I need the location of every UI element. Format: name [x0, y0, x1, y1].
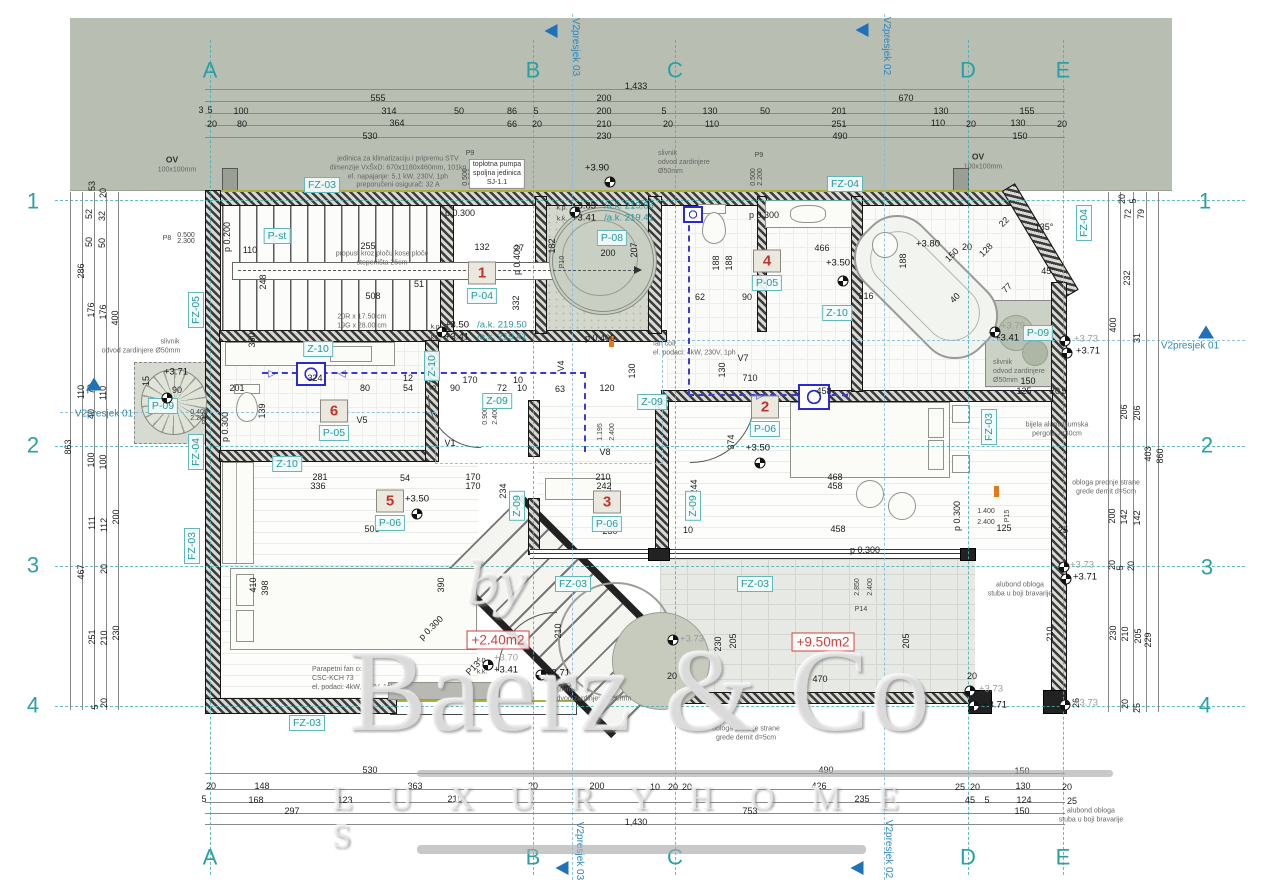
grid-axis-label: A [203, 844, 218, 869]
level-label: /a.k. 219.41 [477, 333, 527, 344]
dim-label: 400 [110, 310, 120, 325]
dim-label: p 0.300 [749, 210, 779, 220]
dim-label: 72 [497, 383, 507, 393]
zone-label: P-04 [467, 288, 497, 304]
dim-label: 5 [90, 704, 100, 709]
dim-label: 426 [811, 781, 826, 791]
dim-label: 5 [1115, 565, 1125, 570]
zone-label: P-06 [592, 516, 622, 532]
annotation: odvod zardinjere Ø50mm [553, 696, 632, 705]
annotation: propust kroz ploču kose ploče stepeništa… [336, 250, 429, 268]
dim-line [205, 101, 1065, 102]
dim-label: 176 [86, 302, 96, 317]
level-label: +3.71 [1076, 347, 1100, 358]
dim-label: 20 [98, 188, 108, 198]
dim-label: 508 [365, 291, 380, 301]
dim-label: 50 [760, 106, 770, 116]
dim-label: 130 [933, 106, 948, 116]
dim-label: 10 [650, 782, 660, 792]
dim-label: 20 [966, 119, 976, 129]
dim-label: 20 [1117, 194, 1127, 204]
dim-label: 1.195 [597, 423, 605, 441]
level-label: +3.71 [983, 701, 1007, 712]
dim-label: 316 [858, 291, 873, 301]
zone-label: Z-10 [272, 456, 302, 472]
dim-label: 100 [86, 452, 96, 467]
grid-axis-label: D [960, 57, 976, 82]
level-marker [1062, 348, 1073, 359]
dim-label: 207 [629, 242, 639, 257]
dim-label: 5 [201, 794, 206, 804]
section-arrow-icon [856, 23, 869, 37]
dim-label: 314 [381, 106, 396, 116]
dim-label: 20 [682, 782, 692, 792]
dim-label: 200 [1107, 508, 1117, 523]
grid-axis-label: E [1056, 844, 1071, 869]
dim-label: p 0.300 [952, 501, 962, 531]
annotation: slivnik odvod zardinjere Ø50mm [993, 359, 1045, 385]
section-arrow-icon [851, 861, 864, 875]
terrace-front-wall [660, 692, 982, 704]
level-marker [755, 458, 766, 469]
south-window-band [530, 549, 975, 559]
dim-label: 5 [1061, 386, 1066, 396]
area-badge: +9.50m2 [792, 633, 855, 652]
dim-label: 53 [87, 181, 97, 191]
dim-label: 1,430 [625, 817, 648, 827]
dim-label: 467 [76, 564, 86, 579]
grid-axis-label: B [526, 57, 541, 82]
dim-label: 72 [1123, 209, 1133, 219]
dim-label: 62 [695, 292, 705, 302]
dim-label: 490 [818, 765, 833, 775]
zone-label: P-st [264, 228, 291, 244]
dim-label: 25 [955, 782, 965, 792]
dim-label: P9 [755, 152, 764, 160]
chair-icon [856, 480, 884, 508]
orange-marker [994, 486, 999, 497]
dim-label: 148 [254, 781, 269, 791]
zone-label: P-08 [597, 230, 627, 246]
dim-line [205, 813, 1065, 814]
level-marker [838, 276, 849, 287]
grid-axis-label: E [1056, 57, 1071, 82]
dim-label: 2.200 [757, 168, 765, 186]
dim-label: V5 [356, 415, 367, 425]
window-pier [648, 548, 670, 561]
dim-label: 210 [553, 623, 563, 638]
section-label: V2presjek 02 [880, 17, 892, 75]
annotation: alubond obloga stuba u boji bravarije [1059, 807, 1124, 825]
grid-line-A [210, 40, 211, 875]
level-marker [162, 393, 173, 404]
level-label: +3.70 [494, 654, 518, 665]
dim-label: 2.200 [190, 415, 208, 423]
annotation: obloga prednje strane grede demit d=5cm [1072, 479, 1140, 497]
dim-label: 555 [370, 93, 385, 103]
level-marker [605, 177, 616, 188]
dim-label: 110 [76, 385, 86, 399]
section-arrow-icon [86, 378, 102, 391]
dim-label: 139 [257, 403, 267, 418]
dim-label: 200 [596, 106, 611, 116]
grid-line-B [533, 40, 534, 875]
zone-label: FZ-04 [1076, 205, 1092, 241]
dim-label: 200 [600, 248, 615, 258]
dim-label: 120 [599, 383, 614, 393]
grid-axis-label: 1 [27, 188, 39, 213]
level-label: +3.73 [1070, 561, 1094, 572]
zone-label: P-05 [752, 275, 782, 291]
zone-label: FZ-05 [188, 292, 204, 328]
dim-label: 530 [362, 131, 377, 141]
level-marker [990, 327, 1001, 338]
dim-label: 230 [111, 625, 121, 640]
zone-label: FZ-03 [555, 576, 591, 592]
dim-label: 363 [407, 781, 422, 791]
annotation: obloga prednje strane grede demit d=5cm [712, 725, 780, 743]
dim-label: p 0.300 [445, 208, 475, 218]
dim-label: 90 [742, 292, 752, 302]
level-label: +3.79 [1001, 322, 1025, 333]
level-label: k.p. [557, 204, 567, 211]
room-number: 3 [593, 491, 621, 514]
dim-label: 135° [1035, 222, 1054, 232]
dim-label: 170 [462, 375, 477, 385]
dim-label: 155 [1019, 106, 1034, 116]
dim-label: 20 [99, 698, 109, 708]
level-marker [1060, 700, 1071, 711]
level-label: +3.50 [445, 321, 469, 332]
dim-label: 201 [229, 383, 244, 393]
grid-axis-label: 2 [27, 432, 39, 457]
dim-label: 5 [661, 106, 666, 116]
dim-label: V8 [599, 447, 610, 457]
dim-label: 188 [898, 253, 908, 268]
grid-line-2 [55, 446, 1245, 447]
dim-label: 150 [1014, 766, 1029, 776]
dim-label: 188 [711, 255, 721, 270]
duct-arrow-icon: ▷ [756, 390, 764, 402]
dim-label: 130 [717, 362, 727, 377]
annotation: bijela aluminijumska pergola 7x30cm [1026, 421, 1089, 439]
dim-label: 100 [233, 106, 248, 116]
dim-label: 51 [414, 279, 424, 289]
zone-label: P-06 [750, 421, 780, 437]
dim-label: 54 [403, 383, 413, 393]
grid-axis-label: 2 [1201, 432, 1213, 457]
dim-label: 5 [533, 106, 538, 116]
dim-label: 20 [528, 781, 538, 791]
annotation: Parapetni fan coil CSC-KCH 73 el. podaci… [312, 666, 395, 692]
dim-label: 753 [742, 806, 757, 816]
dim-label: 205 [901, 633, 911, 648]
level-marker [1061, 574, 1072, 585]
dim-label: 130 [1015, 781, 1030, 791]
dim-label: p 0.300 [220, 412, 230, 442]
level-label: k.k. [557, 215, 567, 222]
dim-label: 12 [403, 373, 413, 383]
dim-label: 200 [596, 93, 611, 103]
pillow [928, 440, 944, 470]
dim-label: 458 [830, 524, 845, 534]
level-label: /a.k. 219.41 [604, 214, 654, 225]
zone-label: P-05 [319, 425, 349, 441]
pillow [236, 610, 254, 642]
toilet-bowl [702, 212, 726, 244]
dim-label: 20 [1120, 699, 1130, 709]
grid-axis-label: 3 [27, 552, 39, 577]
dim-label: 20 [532, 119, 542, 129]
annotation: alubond obloga stuba u boji bravarije [988, 581, 1053, 599]
zone-label: FZ-03 [737, 576, 773, 592]
dim-label: 229 [1143, 632, 1153, 647]
dim-label: 530 [362, 765, 377, 775]
level-label: +3.41 [445, 333, 469, 344]
dim-label: 2.850 [854, 578, 862, 596]
south-paving [390, 700, 577, 715]
room-number: 4 [753, 250, 781, 273]
site-terrain-band [70, 18, 1172, 191]
dim-label: 3 [198, 105, 203, 115]
zone-label: Z-09 [509, 491, 525, 521]
section-arrow-icon [556, 861, 569, 875]
dim-label: 100 [98, 454, 108, 469]
dim-label: 150 [1012, 131, 1027, 141]
dim-label: 5 [207, 105, 212, 115]
dim-label: 324 [307, 373, 322, 383]
section-line-03 [572, 14, 573, 880]
level-label: +3.90 [585, 164, 609, 175]
dim-label: 110 [243, 245, 257, 255]
level-marker [668, 635, 679, 646]
dim-label: 200 [111, 509, 121, 524]
annotation: slivnik [160, 339, 179, 348]
wall-room3-west-b [528, 498, 540, 555]
level-label: +3.50 [746, 444, 770, 455]
level-marker [1059, 562, 1070, 573]
dim-label: 2.400 [492, 407, 500, 425]
annotation: OV [972, 152, 984, 163]
dim-label: 20 [667, 671, 677, 681]
annotation: toplotna pumpa spoljna jedinica SJ-1.1 [469, 159, 525, 189]
dim-label: 80 [237, 119, 247, 129]
floor-plan-canvas: 1,43355520067035100314508652005130502011… [0, 0, 1280, 893]
grid-axis-label: 4 [1199, 692, 1211, 717]
zone-label: Z-09 [482, 393, 512, 409]
dim-label: 297 [284, 806, 299, 816]
dim-label: 1.400 [977, 508, 995, 516]
wardrobe [222, 462, 254, 564]
zone-label: FZ-04 [827, 176, 863, 192]
duct-arrow-icon: ▷ [268, 368, 276, 380]
dim-label: 20 [962, 242, 972, 252]
dim-label: 2.400 [867, 578, 875, 596]
dim-label: 50 [97, 238, 107, 248]
dim-label: 63 [555, 384, 565, 394]
toilet-bowl [236, 392, 258, 422]
dim-label: 20 [663, 119, 673, 129]
dim-label: 110 [931, 118, 945, 128]
stair-walkline-arrow [634, 266, 646, 274]
level-marker [1060, 336, 1071, 347]
dim-label: 1,433 [625, 81, 648, 91]
dim-label: 210 [596, 119, 611, 129]
dim-label: 130 [1010, 118, 1025, 128]
dim-line [205, 802, 1065, 803]
annotation: fan coil el. podaci: 4kW, 230V, 1ph [653, 340, 736, 358]
section-label: V2presjek 03 [569, 18, 581, 76]
section-label: V2presjek 03 [573, 822, 585, 880]
annotation: odvod zardinjere Ø50mm [102, 348, 181, 357]
duct-arrow-icon: ◁ [338, 368, 346, 380]
dim-label: 80 [360, 383, 370, 393]
dim-label: 112 [99, 518, 109, 532]
sink-icon [872, 232, 898, 258]
dim-label: 710 [742, 373, 757, 383]
dim-label: 66 [507, 119, 517, 129]
watermark-tagline: L U X U R Y H O M E S [332, 780, 964, 856]
dim-label: 380 [247, 332, 257, 347]
grid-axis-label: 4 [27, 692, 39, 717]
annotation: OV [166, 155, 178, 166]
dim-label: 20 [99, 564, 109, 574]
dim-label: 79 [1136, 209, 1146, 219]
dim-label: 20 [1050, 386, 1060, 396]
duct-fixture [683, 206, 703, 223]
level-marker [969, 701, 980, 712]
dim-label: 232 [1122, 270, 1132, 285]
stair-walkline [238, 270, 636, 271]
dim-label: 124 [1016, 795, 1031, 805]
dim-label: 466 [814, 243, 829, 253]
dim-label: 403 [1143, 446, 1153, 461]
level-label: /a.k. 219.85 [604, 202, 654, 213]
dim-label: 206 [1132, 405, 1142, 420]
level-label: +3.71 [546, 669, 570, 680]
section-label: V2presjek 01 [75, 408, 133, 420]
dim-label: 15 [141, 376, 151, 386]
dim-label: 205 [1133, 628, 1143, 643]
dim-label: 458 [827, 481, 842, 491]
grid-axis-label: A [203, 57, 218, 82]
pillow [928, 408, 944, 438]
bed-room2 [790, 402, 950, 478]
section-line-01c [435, 463, 662, 464]
dim-label: 230 [713, 636, 723, 651]
dim-label: 130 [627, 363, 637, 378]
level-marker [412, 509, 423, 520]
dim-label: 470 [812, 674, 827, 684]
section-arrow-icon [1198, 326, 1214, 339]
dim-label: p 0.400 [585, 333, 615, 343]
wall-room6-south [219, 450, 435, 462]
dim-label: 52 [84, 209, 94, 219]
grid-axis-label: C [667, 57, 683, 82]
dim-label: 25 [1058, 525, 1068, 535]
dim-label: 132 [474, 242, 489, 252]
dim-label: 5 [984, 795, 989, 805]
dim-label: 251 [831, 119, 846, 129]
dim-label: 201 [831, 106, 846, 116]
dim-label: p 0.400 [512, 245, 522, 275]
room-number: 6 [320, 400, 348, 423]
dim-label: 111 [87, 516, 97, 530]
section-arrow-icon [545, 24, 558, 38]
level-label: +3.73 [1074, 699, 1098, 710]
zone-label: P-09 [1023, 325, 1053, 341]
dim-label: 0.900 [482, 407, 490, 425]
zone-label: Z-09 [637, 394, 667, 410]
dim-label: 10 [517, 383, 527, 393]
dim-label: V1 [444, 438, 455, 448]
dim-label: 390 [436, 577, 446, 592]
room-number: 5 [376, 490, 404, 513]
dim-label: p 0.300 [850, 545, 880, 555]
dim-label: 332 [511, 295, 521, 310]
grid-axis-label: B [526, 844, 541, 869]
dim-label: 123 [337, 795, 352, 805]
dim-label: V4 [556, 360, 566, 371]
dim-label: 176 [98, 304, 108, 319]
grid-line-E [1063, 40, 1064, 875]
dim-label: 125 [996, 523, 1011, 533]
sink-icon [330, 346, 372, 362]
dim-label: 2.400 [977, 519, 995, 527]
level-label: /a.k. 219.50 [477, 321, 527, 332]
area-badge: +2.40m2 [467, 631, 530, 650]
dim-line [205, 137, 1065, 138]
dim-label: 25 [1067, 796, 1077, 806]
dim-label: 210 [1045, 626, 1055, 641]
annotation: jedinica za klimatizaciju i pripremu STV… [330, 156, 467, 191]
dim-label: 458 [816, 386, 831, 396]
dim-label: 230 [1108, 625, 1118, 640]
dim-label: 5 [1128, 198, 1138, 203]
level-marker [437, 327, 448, 338]
dim-label: 20 [1126, 561, 1136, 571]
dim-label: 45 [965, 795, 975, 805]
dim-label: P15 [1004, 510, 1012, 522]
level-marker [483, 660, 494, 671]
dim-label: 364 [389, 118, 404, 128]
zone-label: FZ-03 [184, 528, 200, 564]
annotation: 100x100mm [964, 164, 1003, 173]
level-label: +3.71 [1073, 573, 1097, 584]
fancoil-unit [388, 682, 500, 700]
annotation: slivnik odvod zardinjere Ø50mm [658, 150, 710, 176]
zone-label: FZ-04 [188, 434, 204, 470]
level-label: +3.71 [164, 368, 188, 379]
dim-label: V7 [737, 353, 748, 363]
dim-label: 168 [248, 795, 263, 805]
dim-label: P14 [855, 606, 867, 614]
dim-line [205, 789, 1065, 790]
dim-label: 235 [854, 794, 869, 804]
zone-label: FZ-03 [289, 715, 325, 731]
section-line-01b [435, 412, 436, 463]
dim-label: 20 [668, 782, 678, 792]
sink-icon [790, 205, 826, 223]
grid-axis-label: 3 [1201, 554, 1213, 579]
section-label: V2presjek 01 [1161, 340, 1219, 352]
zone-label: Z-09 [685, 491, 701, 521]
dim-label: 54 [400, 473, 410, 483]
dim-label: 90 [172, 385, 182, 395]
dim-label: 2.400 [609, 423, 617, 441]
dim-label: 2.300 [177, 238, 195, 246]
dim-label: 248 [258, 274, 268, 289]
